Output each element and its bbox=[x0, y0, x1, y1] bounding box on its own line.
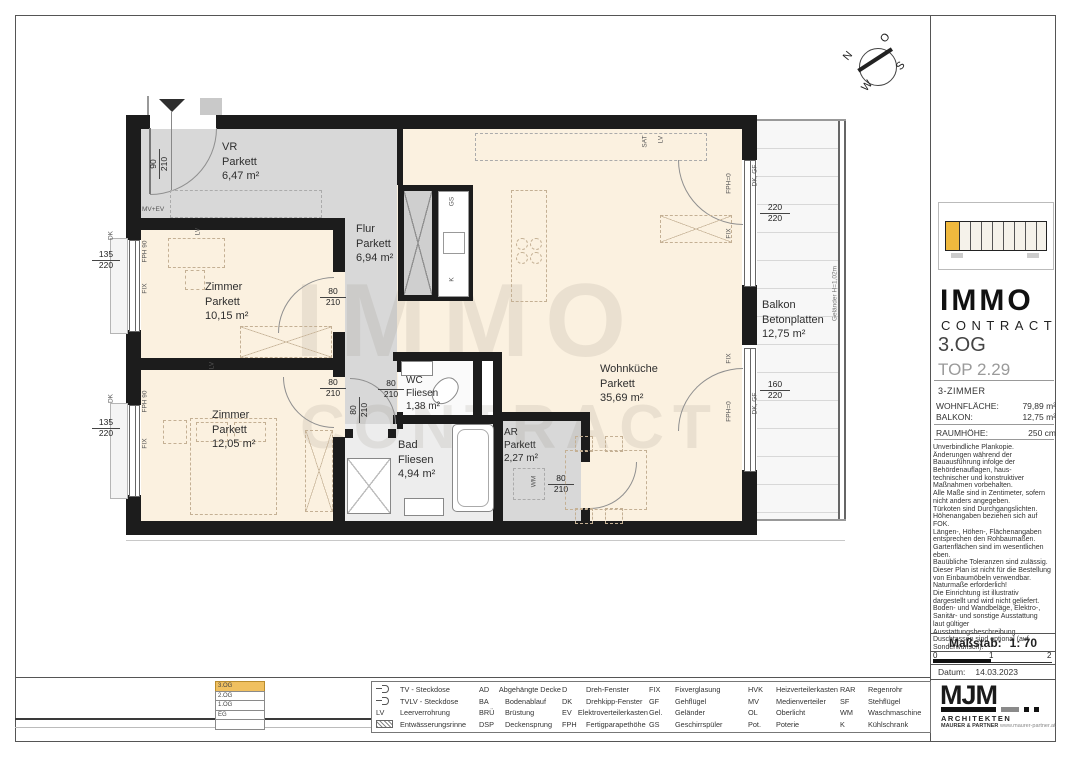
entrance-arrow-icon bbox=[159, 99, 185, 112]
tv-socket-icon bbox=[376, 685, 390, 692]
legend-item: SFStehflügel bbox=[840, 696, 928, 708]
room-label-zimmer2: ZimmerParkett12,05 m² bbox=[212, 408, 255, 452]
dimension-bad-door: 80210 bbox=[349, 397, 369, 423]
furniture-nightstand bbox=[163, 420, 187, 444]
titleblock-divider bbox=[15, 677, 930, 678]
furniture-dining-table bbox=[565, 450, 647, 510]
dk-label: DK bbox=[108, 387, 115, 411]
key-plan-stub bbox=[951, 253, 963, 258]
fph0-label: FPH=0 bbox=[726, 395, 733, 429]
stove-burner bbox=[530, 252, 542, 264]
wall-segment bbox=[333, 332, 345, 377]
stove-burner bbox=[530, 238, 542, 250]
key-plan-highlighted-unit bbox=[946, 222, 960, 250]
room-label-wc: WCFliesen1,38 m² bbox=[406, 374, 440, 414]
fact-balkon: BALKON:12,75 m² bbox=[936, 412, 1056, 422]
legend-item: DSPDeckensprung bbox=[479, 719, 561, 731]
legend-item: TV - Steckdose bbox=[376, 684, 478, 696]
wall-segment bbox=[388, 429, 396, 438]
wall-segment bbox=[397, 129, 403, 185]
wall-segment bbox=[345, 429, 353, 438]
fph0-label: FPH=0 bbox=[726, 167, 733, 201]
wall-segment bbox=[742, 115, 757, 160]
legend-item: Entwässerungsrinne bbox=[376, 719, 478, 731]
legend-col-1: TV - Steckdose TVLV - Steckdose LVLeerve… bbox=[376, 684, 478, 730]
legend-item: WMWaschmaschine bbox=[840, 707, 928, 719]
mv-ev-label: MV+EV bbox=[142, 206, 164, 213]
legend-item: MVMedienverteiler bbox=[748, 696, 838, 708]
dimension-room1-door: 80210 bbox=[320, 287, 346, 307]
room-label-flur: FlurParkett6,94 m² bbox=[356, 222, 393, 266]
shaft bbox=[404, 191, 432, 295]
bathroom-sink bbox=[404, 498, 444, 516]
kitchen-sink bbox=[443, 232, 465, 254]
legend-item: BRÜBrüstung bbox=[479, 707, 561, 719]
legend-item: GSGeschirrspüler bbox=[649, 719, 747, 731]
furniture-chair bbox=[185, 270, 205, 290]
dk-gf-label: DK, GF bbox=[752, 387, 759, 421]
dimension-entrance-door: 90210 bbox=[149, 149, 169, 179]
fix-label: FIX bbox=[726, 220, 733, 248]
key-plan-building bbox=[945, 221, 1047, 251]
legend-col-3: DDreh-Fenster DKDrehkipp-Fenster EVElekt… bbox=[562, 684, 648, 730]
legend-col-6: RARRegenrohr SFStehflügel WMWaschmaschin… bbox=[840, 684, 928, 730]
brand-logo: IMMO bbox=[940, 284, 1034, 318]
room-label-balkon: BalkonBetonplatten12,75 m² bbox=[762, 298, 824, 342]
wall-segment bbox=[126, 115, 141, 240]
lv-label: LV bbox=[658, 128, 665, 152]
dimension-window-2: 135220 bbox=[92, 418, 120, 438]
legend-item: LVLeerverrohrung bbox=[376, 707, 478, 719]
balcony-edge-top bbox=[757, 119, 846, 121]
compass-north: N bbox=[841, 49, 855, 63]
wall-segment bbox=[333, 230, 345, 272]
furniture-chair bbox=[605, 436, 623, 452]
date-row: Datum:14.03.2023 bbox=[930, 664, 1056, 680]
room-label-vr: VRParkett6,47 m² bbox=[222, 140, 259, 184]
wall-segment bbox=[216, 115, 757, 129]
legend-item: FPHFertigparapethöhe bbox=[562, 719, 648, 731]
balcony-edge-bottom bbox=[757, 519, 846, 521]
legend-item: ADAbgehängte Decke bbox=[479, 684, 561, 696]
wall-segment bbox=[473, 352, 482, 424]
dimension-wc-door: 80210 bbox=[378, 379, 404, 399]
tvlv-socket-icon bbox=[376, 697, 390, 704]
architect-logo-bar bbox=[941, 707, 1049, 712]
dishwasher-label: GS bbox=[449, 188, 456, 216]
key-plan bbox=[938, 202, 1054, 270]
wall-segment bbox=[742, 470, 757, 535]
legend-item: KKühlschrank bbox=[840, 719, 928, 731]
legend-col-4: FIXFixverglasung GFGehflügel Gel.Gelände… bbox=[649, 684, 747, 730]
legend-item: RARRegenrohr bbox=[840, 684, 928, 696]
key-plan-stub bbox=[1027, 253, 1039, 258]
fact-raumhoehe: RAUMHÖHE:250 cm bbox=[936, 428, 1056, 438]
divider bbox=[934, 424, 1054, 425]
fph-label: FPH 90 bbox=[142, 235, 149, 269]
legend-item: DKDrehkipp-Fenster bbox=[562, 696, 648, 708]
legend-item: GFGehflügel bbox=[649, 696, 747, 708]
furniture-chair bbox=[605, 508, 623, 524]
furniture-chair bbox=[575, 436, 593, 452]
legend-item: FIXFixverglasung bbox=[649, 684, 747, 696]
titleblock-line bbox=[15, 727, 371, 728]
balcony-railing-inner bbox=[844, 121, 846, 519]
wall-segment bbox=[493, 421, 503, 521]
wall-segment bbox=[393, 415, 498, 424]
furniture-wardrobe bbox=[240, 326, 332, 358]
dimension-room2-door: 80210 bbox=[320, 378, 346, 398]
floor-selector: 3.OG 2.OG 1.OG EG bbox=[215, 682, 265, 730]
legend-item: OLOberlicht bbox=[748, 707, 838, 719]
legend-item: BABodenablauf bbox=[479, 696, 561, 708]
wall-segment bbox=[126, 330, 141, 405]
divider bbox=[934, 439, 1054, 440]
legend-item: EVElektroverteilerkasten bbox=[562, 707, 648, 719]
wall-segment bbox=[393, 352, 498, 361]
fix-label: FIX bbox=[142, 430, 149, 458]
divider bbox=[934, 380, 1054, 381]
room-label-bad: BadFliesen4,94 m² bbox=[398, 438, 435, 482]
fact-wohnflaeche: WOHNFLÄCHE:79,89 m² bbox=[936, 401, 1056, 411]
unit-title: TOP 2.29 bbox=[938, 360, 1010, 380]
wall-segment bbox=[742, 285, 757, 345]
key-plan-units bbox=[960, 222, 1046, 250]
furniture-kitchen-counter bbox=[475, 133, 707, 161]
architect-line1: ARCHITEKTEN bbox=[941, 714, 1011, 723]
fix-label: FIX bbox=[726, 345, 733, 373]
wall-segment bbox=[493, 412, 590, 421]
floor-row-empty[interactable] bbox=[215, 719, 265, 730]
drain-channel-icon bbox=[376, 720, 393, 728]
architect-line2: MAURER & PARTNER bbox=[941, 723, 998, 729]
window bbox=[129, 405, 140, 497]
furniture-vr-cupboard bbox=[170, 190, 322, 218]
dimension-balcony-door-1: 220220 bbox=[760, 203, 790, 223]
plan-sheet: Geländer H=1,02m IMMO CONTRACT GS K 902 bbox=[0, 0, 1071, 757]
lv-label: LV bbox=[195, 220, 202, 244]
scale-bar: 0 1 2 bbox=[933, 651, 1053, 665]
unit-type: 3-ZIMMER bbox=[938, 386, 986, 396]
scale-box: Maßstab:1: 70 bbox=[930, 633, 1056, 652]
bathtub bbox=[452, 424, 494, 512]
wall-segment bbox=[141, 218, 345, 230]
window bbox=[129, 240, 140, 332]
washing-machine bbox=[513, 468, 545, 500]
legend-item: Gel.Geländer bbox=[649, 707, 747, 719]
legend-item: HVKHeizverteilerkasten bbox=[748, 684, 838, 696]
lv-label: LV bbox=[209, 354, 216, 378]
dimension-window-1: 135220 bbox=[92, 250, 120, 270]
room-label-wohnkueche: WohnkücheParkett35,69 m² bbox=[600, 362, 658, 406]
room-label-zimmer1: ZimmerParkett10,15 m² bbox=[205, 280, 248, 324]
entrance-line bbox=[147, 96, 149, 115]
wall-segment bbox=[141, 358, 333, 370]
architect-url: www.maurer-partner.at bbox=[1000, 723, 1056, 729]
furniture-wardrobe bbox=[305, 430, 333, 512]
disclaimer-text: Unverbindliche Plankopie. Änderungen wäh… bbox=[933, 444, 1057, 652]
compass: N O S W bbox=[830, 28, 940, 118]
legend-col-5: HVKHeizverteilerkasten MVMedienverteiler… bbox=[748, 684, 838, 730]
legend-item: Pot.Poterie bbox=[748, 719, 838, 731]
wm-label: WM bbox=[531, 468, 538, 496]
lower-balcony-line bbox=[126, 540, 845, 541]
sat-label: SAT bbox=[642, 128, 649, 156]
titleblock-line bbox=[15, 718, 371, 720]
legend-item: DDreh-Fenster bbox=[562, 684, 648, 696]
fph-label: FPH 90 bbox=[142, 385, 149, 419]
furniture-sideboard bbox=[660, 215, 732, 243]
brand-logo-sub: CONTRACT bbox=[941, 318, 1057, 333]
furniture-chair bbox=[575, 508, 593, 524]
fix-label: FIX bbox=[142, 275, 149, 303]
legend-col-2: ADAbgehängte Decke BABodenablauf BRÜBrüs… bbox=[479, 684, 561, 730]
wall-segment bbox=[333, 437, 345, 521]
room-label-ar: ARParkett2,27 m² bbox=[504, 426, 538, 466]
compass-east: O bbox=[878, 31, 893, 45]
dimension-balcony-door-2: 160220 bbox=[760, 380, 790, 400]
railing-height-label: Geländer H=1,02m bbox=[832, 259, 839, 329]
dk-gf-label: DK, GF bbox=[752, 159, 759, 193]
fridge-label: K bbox=[449, 268, 456, 292]
floor-title: 3.OG bbox=[938, 334, 986, 357]
wall-segment bbox=[126, 521, 757, 535]
entrance-wall-stub bbox=[200, 98, 222, 115]
stove-burner bbox=[516, 238, 528, 250]
dk-label: DK bbox=[108, 224, 115, 248]
shower bbox=[347, 458, 391, 514]
stove-burner bbox=[516, 252, 528, 264]
legend-item: TVLV - Steckdose bbox=[376, 696, 478, 708]
